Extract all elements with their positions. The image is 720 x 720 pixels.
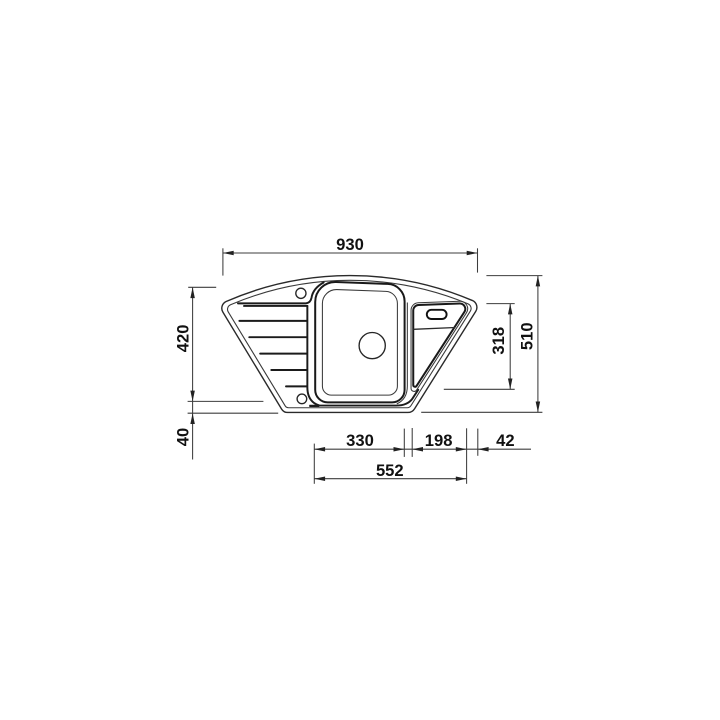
svg-text:198: 198 — [425, 431, 453, 450]
svg-text:318: 318 — [489, 327, 508, 355]
svg-text:42: 42 — [496, 431, 514, 450]
svg-text:510: 510 — [518, 322, 537, 350]
svg-text:420: 420 — [174, 325, 193, 353]
svg-text:930: 930 — [336, 235, 364, 254]
svg-text:330: 330 — [346, 431, 374, 450]
svg-text:40: 40 — [174, 428, 193, 446]
svg-text:552: 552 — [376, 461, 404, 480]
